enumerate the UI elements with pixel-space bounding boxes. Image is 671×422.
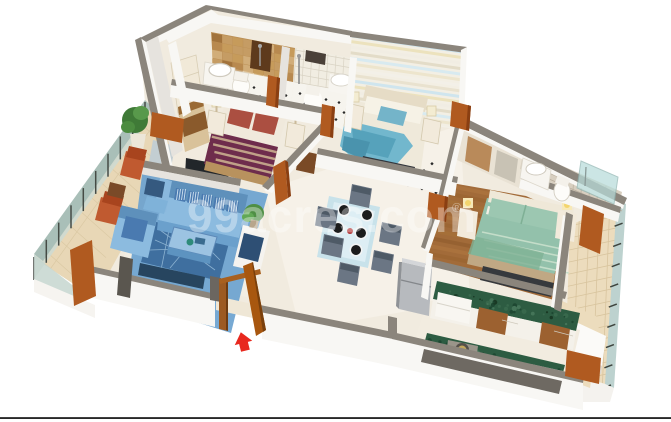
- svg-text:®: ®: [452, 200, 462, 215]
- svg-text:99acres.com: 99acres.com: [187, 190, 477, 242]
